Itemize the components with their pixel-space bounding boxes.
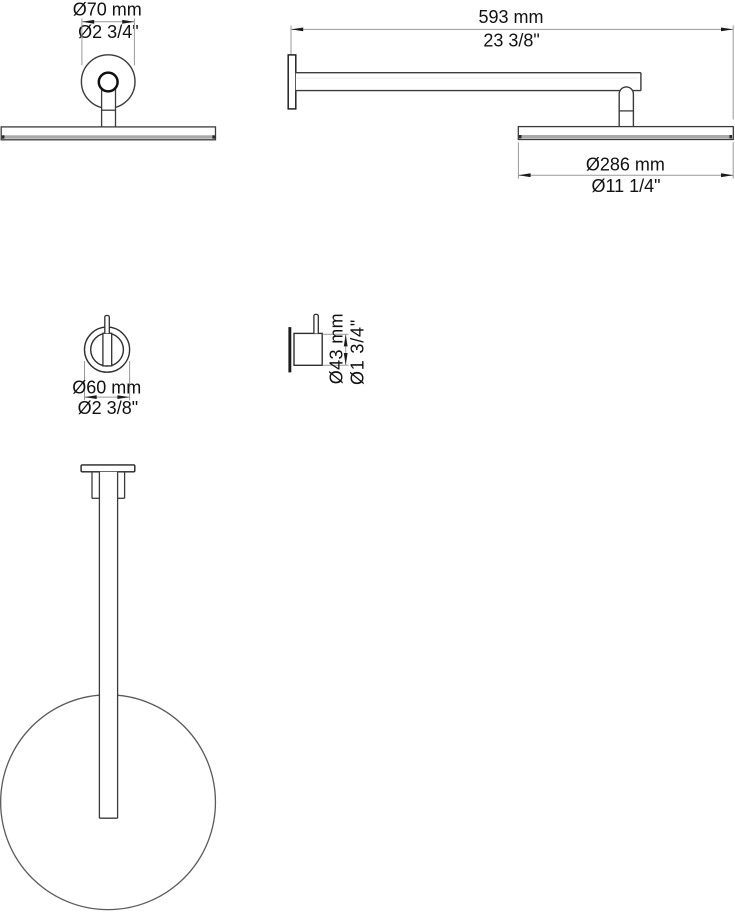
svg-text:Ø60 mm: Ø60 mm [72, 378, 141, 398]
svg-text:23 3/8": 23 3/8" [483, 30, 539, 50]
svg-text:Ø1 3/4": Ø1 3/4" [347, 319, 367, 385]
svg-text:Ø11 1/4": Ø11 1/4" [591, 176, 660, 196]
svg-text:593 mm: 593 mm [478, 7, 543, 27]
svg-text:Ø2 3/8": Ø2 3/8" [78, 398, 138, 418]
svg-text:Ø2 3/4": Ø2 3/4" [78, 22, 138, 42]
svg-text:Ø43 mm: Ø43 mm [327, 313, 347, 384]
svg-text:Ø286 mm: Ø286 mm [586, 155, 665, 175]
svg-text:Ø70 mm: Ø70 mm [73, 0, 142, 20]
